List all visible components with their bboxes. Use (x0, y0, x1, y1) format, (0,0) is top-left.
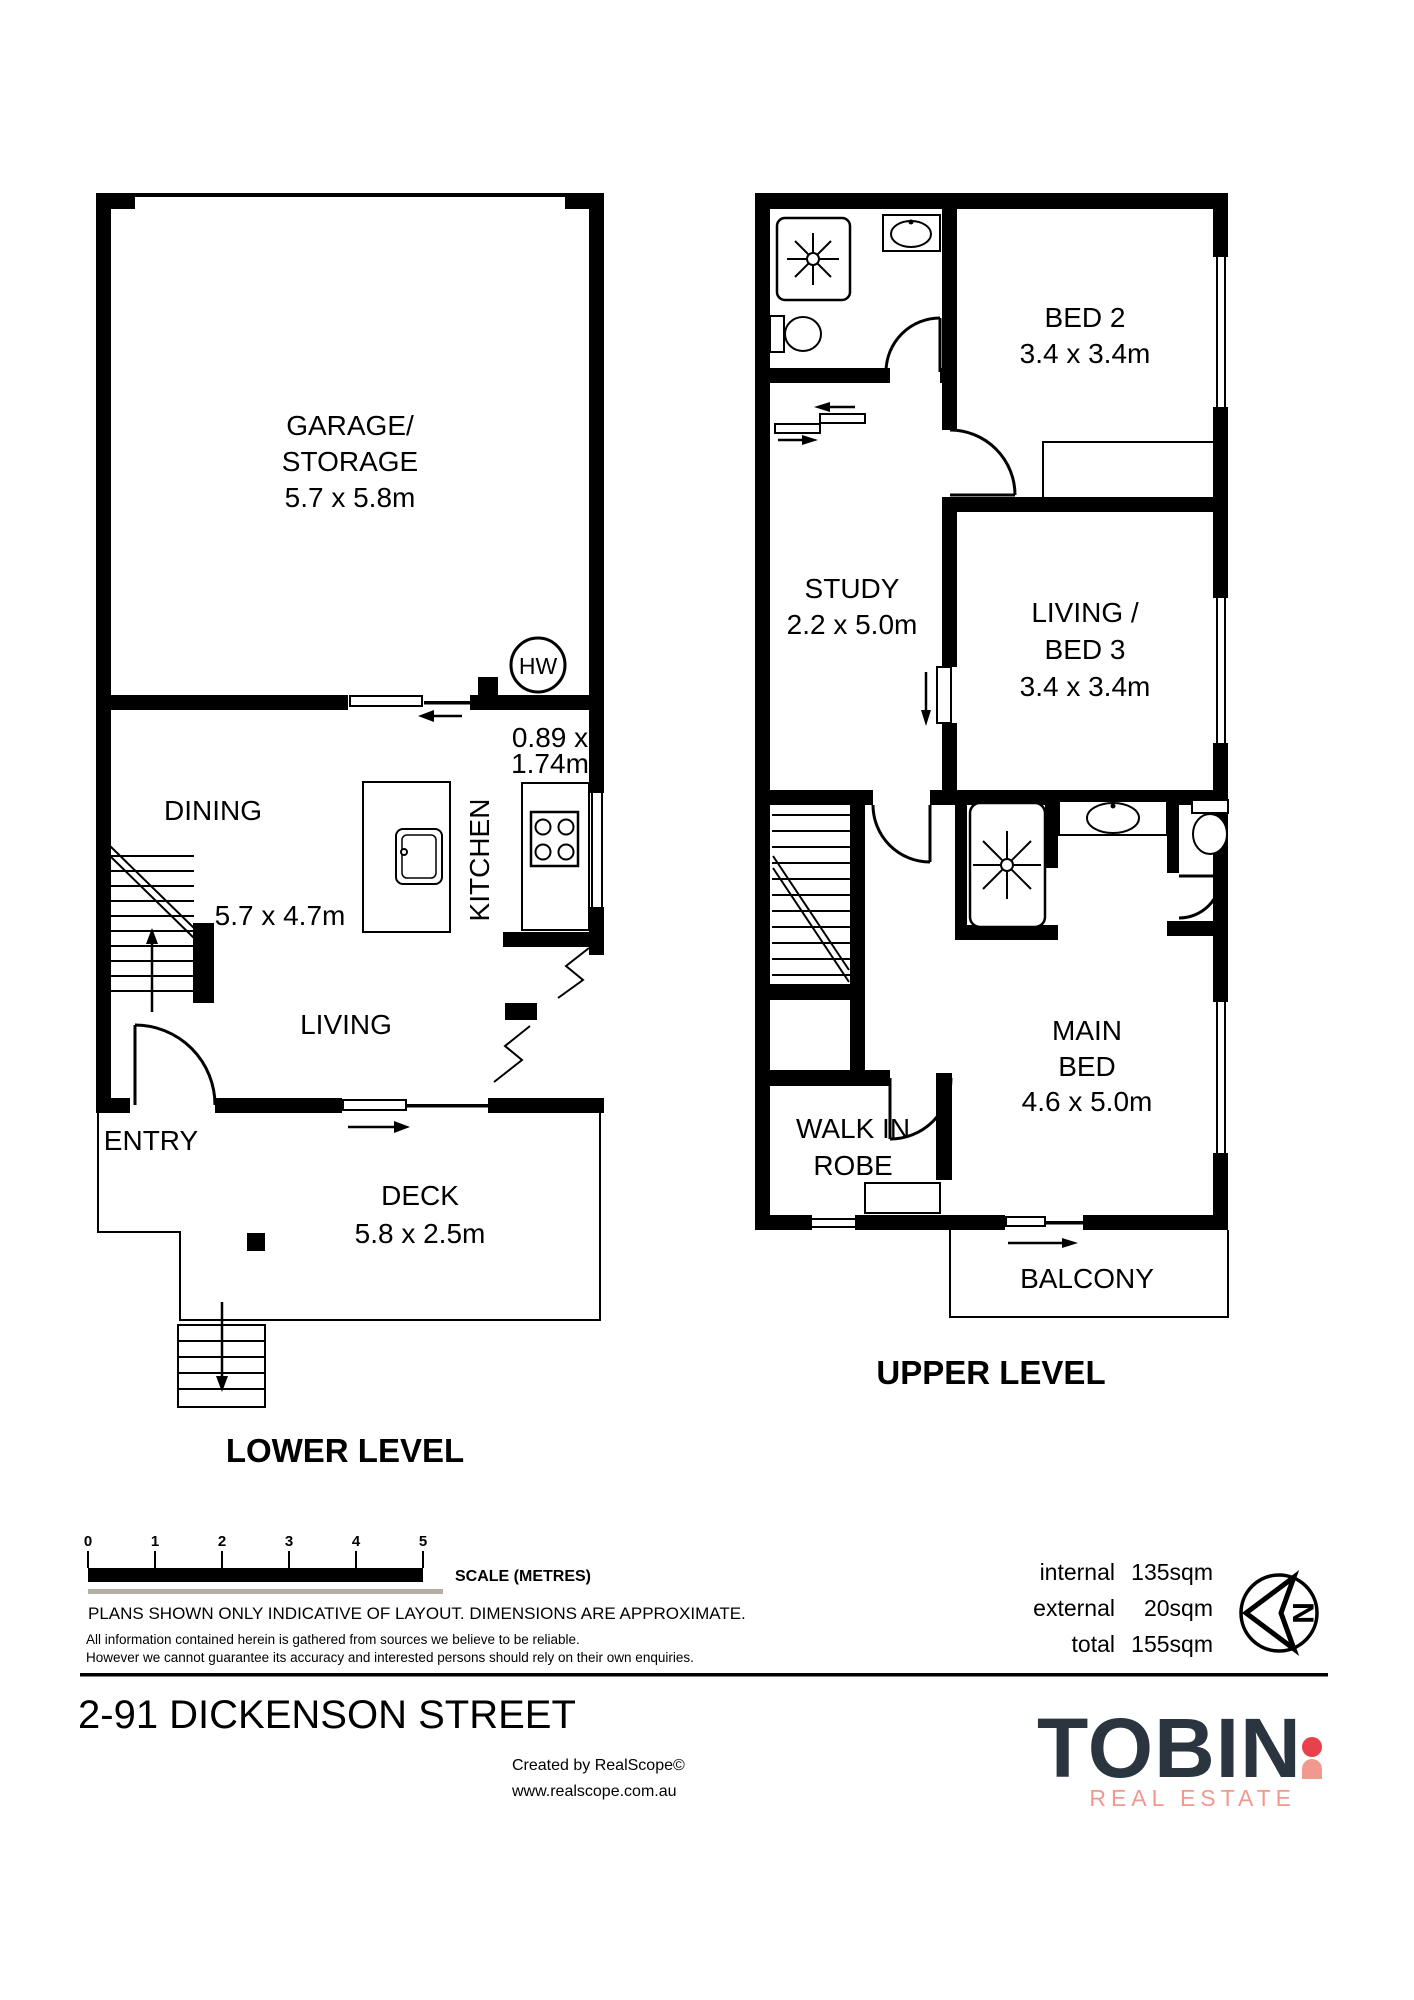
area-internal-value: 135sqm (1131, 1559, 1213, 1585)
area-external-label: external (1033, 1595, 1115, 1621)
footer: 0 1 2 3 4 5 SCALE (METRES) PLANS SHOWN O… (78, 1533, 1328, 1811)
agency-logo: TOBIN REAL ESTATE (1037, 1701, 1322, 1811)
divider-rule (80, 1673, 1328, 1677)
ensuite-fixtures (970, 800, 1228, 927)
upper-level-title: UPPER LEVEL (876, 1354, 1105, 1391)
disclaimer-line-1: All information contained herein is gath… (86, 1632, 580, 1647)
deck-outline (98, 1113, 600, 1407)
layout-note: PLANS SHOWN ONLY INDICATIVE OF LAYOUT. D… (88, 1604, 746, 1623)
kitchen-window (591, 793, 603, 907)
living-label: LIVING (300, 1009, 392, 1040)
dining-label: DINING (164, 795, 262, 826)
credit-line-1: Created by RealScope© (512, 1757, 685, 1774)
walk-in-robe-label-1: WALK IN (796, 1113, 910, 1144)
main-bed-dims: 4.6 x 5.0m (1022, 1086, 1153, 1117)
bifold-doors (494, 948, 589, 1082)
linen-sliding-doors (775, 402, 865, 445)
sink-icon (396, 829, 442, 884)
area-total-value: 155sqm (1131, 1631, 1213, 1657)
hot-water-label: HW (519, 653, 558, 679)
basin2-icon (1059, 801, 1167, 835)
area-internal-label: internal (1040, 1559, 1115, 1585)
logo-name: TOBIN (1037, 1701, 1302, 1795)
logo-colon-arch (1302, 1759, 1322, 1779)
logo-tagline: REAL ESTATE (1089, 1785, 1296, 1811)
upper-level-plan: BED 2 3.4 x 3.4m STUDY 2.2 x 5.0m LIVING… (755, 193, 1228, 1391)
entry-door (135, 1025, 215, 1105)
scale-tick-4: 4 (352, 1533, 361, 1550)
kitchen-label: KITCHEN (464, 799, 495, 922)
shower2-icon (970, 803, 1045, 927)
garage-dims: 5.7 x 5.8m (285, 482, 416, 513)
garage-sliding-door (350, 696, 470, 722)
toilet2-icon (1192, 800, 1228, 854)
north-label: N (1286, 1602, 1319, 1624)
cooktop-icon (531, 812, 578, 866)
stairs-lower-icon (110, 846, 196, 1012)
study-label: STUDY (805, 573, 900, 604)
living-bed3-dims: 3.4 x 3.4m (1020, 671, 1151, 702)
living-bed3-label-1: LIVING / (1031, 597, 1139, 628)
hall-door (873, 805, 930, 862)
logo-colon-dot (1302, 1737, 1322, 1757)
stairs-upper-icon (772, 798, 850, 982)
bathroom-door (886, 318, 940, 372)
shower-icon (777, 218, 850, 300)
scale-bar: 0 1 2 3 4 5 SCALE (METRES) (84, 1533, 591, 1594)
garage-label-2: STORAGE (282, 446, 418, 477)
main-bed-label-2: BED (1058, 1051, 1116, 1082)
scale-label: SCALE (METRES) (455, 1568, 591, 1585)
bed2-robe (1043, 442, 1215, 497)
area-external-value: 20sqm (1144, 1595, 1213, 1621)
address-title: 2-91 DICKENSON STREET (78, 1693, 576, 1737)
toilet-icon (770, 316, 821, 352)
bathroom-fixtures (770, 215, 940, 352)
basin-icon (883, 215, 940, 251)
island-bench (363, 782, 450, 932)
scale-tick-5: 5 (419, 1533, 427, 1550)
floorplan-canvas: HW GARAGE/ STORAGE 5.7 x 5.8m DINING 5.7… (0, 0, 1414, 2000)
upper-walls (755, 193, 1228, 1230)
balcony-label: BALCONY (1020, 1263, 1154, 1294)
robe-shelf (865, 1183, 940, 1213)
north-indicator-icon: N (1241, 1575, 1319, 1651)
living-sliding-door (343, 1100, 488, 1133)
lower-level-title: LOWER LEVEL (226, 1432, 464, 1469)
scale-tick-2: 2 (218, 1533, 226, 1550)
walk-in-robe-label-2: ROBE (813, 1150, 892, 1181)
floorplan-page: HW GARAGE/ STORAGE 5.7 x 5.8m DINING 5.7… (0, 0, 1414, 2000)
study-dims: 2.2 x 5.0m (787, 609, 918, 640)
deck-label: DECK (381, 1180, 459, 1211)
dining-dims: 5.7 x 4.7m (215, 900, 346, 931)
pantry-dims-2: 1.74m (511, 748, 589, 779)
credit-line-2: www.realscope.com.au (511, 1783, 677, 1800)
deck-dims: 5.8 x 2.5m (355, 1218, 486, 1249)
disclaimer-line-2: However we cannot guarantee its accuracy… (86, 1650, 694, 1665)
area-summary: internal 135sqm external 20sqm total 155… (1033, 1559, 1213, 1657)
study-sliding-door (921, 667, 951, 726)
deck-stairs-icon (178, 1302, 265, 1407)
scale-tick-0: 0 (84, 1533, 92, 1550)
balcony-sliding-door (1006, 1217, 1083, 1248)
scale-tick-3: 3 (285, 1533, 293, 1550)
area-total-label: total (1072, 1631, 1115, 1657)
bed2-label: BED 2 (1045, 302, 1126, 333)
kitchen-bench (522, 783, 589, 930)
deck-post (247, 1233, 265, 1251)
bed2-door (950, 430, 1015, 495)
main-bed-label-1: MAIN (1052, 1015, 1122, 1046)
scale-tick-1: 1 (151, 1533, 159, 1550)
lower-level-plan: HW GARAGE/ STORAGE 5.7 x 5.8m DINING 5.7… (96, 193, 604, 1469)
hot-water-icon: HW (511, 638, 565, 692)
bed2-dims: 3.4 x 3.4m (1020, 338, 1151, 369)
garage-label-1: GARAGE/ (286, 410, 414, 441)
living-bed3-label-2: BED 3 (1045, 634, 1126, 665)
entry-label: ENTRY (104, 1125, 199, 1156)
